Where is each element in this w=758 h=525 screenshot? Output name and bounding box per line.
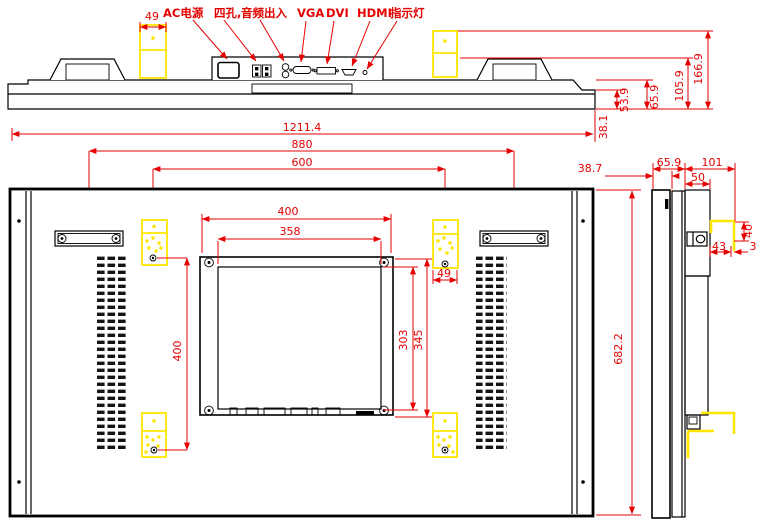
- technical-drawing-page: 49 AC电源 四孔, 音频出入 VGA DVI HDMI 指示灯 53.9 6…: [0, 0, 758, 525]
- top-handle-left: [50, 59, 125, 80]
- label-ac-power: AC电源: [163, 6, 204, 20]
- dim-hook-height: 40: [742, 224, 755, 238]
- dim-rear-height: 682.2: [612, 333, 625, 365]
- label-dvi: DVI: [326, 6, 349, 20]
- vent-column-left: [97, 255, 128, 451]
- dim-depth-with-panel: 105.9: [673, 70, 686, 102]
- dim-plate-width: 400: [278, 205, 299, 218]
- leader-ac-power: [193, 20, 227, 59]
- top-handle-right: [477, 59, 552, 80]
- dim-depth-front-step: 53.9: [618, 88, 631, 113]
- label-hdmi: HDMI: [357, 6, 392, 20]
- leader-four-hole: [224, 20, 256, 61]
- dim-depth-body: 65.9: [648, 85, 661, 110]
- monitor-dimension-drawing: 49 AC电源 四孔, 音频出入 VGA DVI HDMI 指示灯 53.9 6…: [0, 0, 758, 525]
- side-lower-rail: [685, 276, 708, 415]
- side-bottom-mount: [687, 415, 700, 429]
- dim-hook-gap: 3: [750, 240, 757, 253]
- dim-depth-front: 38.1: [597, 115, 610, 140]
- label-four-hole: 四孔,: [214, 6, 241, 20]
- rear-handle-left: [55, 231, 123, 246]
- frame-screw: [581, 480, 585, 484]
- dim-plate-height: 345: [412, 330, 425, 351]
- dim-bracket-width-top: 49: [145, 10, 159, 23]
- dim-handle-span: 880: [292, 138, 313, 151]
- dim-plate-inner-height: 303: [397, 330, 410, 351]
- dim-mount-hole-span: 600: [292, 156, 313, 169]
- dim-plate-inner-width: 358: [280, 225, 301, 238]
- frame-screw: [17, 219, 21, 223]
- dim-overall-width: 1211.4: [283, 121, 322, 134]
- dim-depth-with-bracket: 166.9: [692, 53, 705, 85]
- dim-bracket-width-rear: 49: [437, 267, 451, 280]
- label-audio-io: 音频出入: [241, 6, 287, 20]
- side-rear-cover: [672, 191, 685, 517]
- dim-side-overall-depth: 101: [702, 156, 723, 169]
- side-front-panel: [652, 190, 670, 518]
- dim-hook-width: 43: [712, 240, 726, 253]
- wall-bracket-top-right: [433, 31, 457, 77]
- connector-panel: [212, 57, 383, 80]
- wall-hook-lower: [688, 413, 734, 458]
- dim-side-rail-depth: 50: [691, 171, 705, 184]
- label-vga: VGA: [297, 6, 324, 20]
- top-view: [8, 25, 595, 109]
- side-upper-rail: [685, 190, 710, 276]
- label-indicator: 指示灯: [390, 6, 425, 20]
- side-mount-bracket: [687, 232, 707, 246]
- leader-audio-io: [260, 20, 284, 61]
- leader-vga: [301, 21, 306, 62]
- frame-screw: [581, 219, 585, 223]
- wall-bracket-top-left: [140, 25, 166, 78]
- dim-bracket-hole-vspan: 400: [171, 341, 184, 362]
- rear-view: [10, 189, 593, 516]
- rear-handle-right: [480, 231, 548, 246]
- dim-side-body-depth: 65.9: [657, 156, 682, 169]
- frame-screw: [17, 480, 21, 484]
- dim-side-front-depth: 38.7: [578, 162, 603, 175]
- vent-column-right: [476, 255, 507, 451]
